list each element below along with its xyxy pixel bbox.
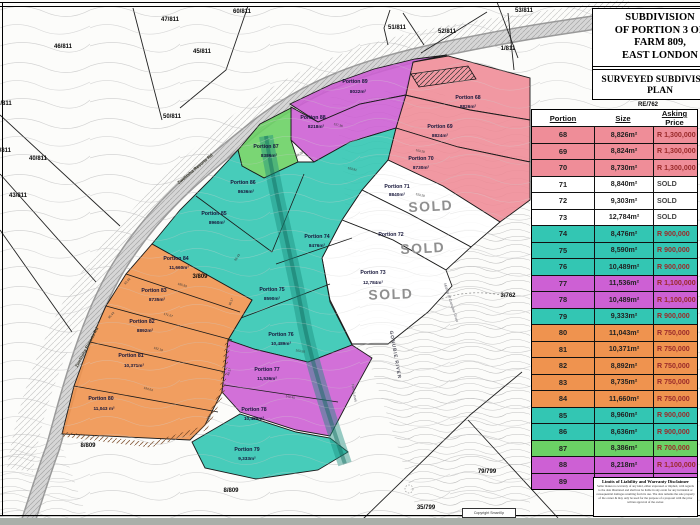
- map-label: Portion 85: [201, 211, 226, 217]
- cell-size: 8,476m²: [595, 226, 654, 242]
- cell-price: R 750,000: [654, 362, 697, 370]
- map-label: Portion 84: [163, 256, 188, 262]
- map-label: Portion 81: [118, 353, 143, 359]
- cell-size: 10,489m²: [595, 259, 654, 275]
- price-table-header: PortionSizeAsking Price: [532, 110, 697, 126]
- table-row[interactable]: 698,824m²R 1,300,000: [532, 143, 697, 160]
- cell-price: R 750,000: [654, 329, 697, 337]
- cadastral-label: 1/811: [501, 46, 516, 52]
- cell-portion: 77: [532, 276, 595, 292]
- map-label: Portion 80: [88, 396, 113, 402]
- map-label: 10,371m²: [124, 363, 145, 368]
- map-label: 12,784m²: [363, 280, 384, 285]
- cell-size: 8,636m²: [595, 424, 654, 440]
- cadastral-label: 51/811: [388, 25, 407, 31]
- table-row[interactable]: 8411,660m²R 750,000: [532, 390, 697, 407]
- table-row[interactable]: 758,590m²R 900,000: [532, 242, 697, 259]
- cell-size: 12,784m²: [595, 210, 654, 226]
- title-lines: SUBDIVISIONOF PORTION 3 OFFARM 809,EAST …: [593, 9, 700, 67]
- cadastral-label: 47/811: [161, 17, 180, 23]
- cell-price: R 900,000: [654, 428, 697, 436]
- cell-size: 8,218m²: [595, 457, 654, 473]
- table-row[interactable]: 729,303m²SOLD: [532, 192, 697, 209]
- cell-price: R 750,000: [654, 395, 697, 403]
- cell-size: 10,371m²: [595, 342, 654, 358]
- cell-size: 11,660m²: [595, 391, 654, 407]
- cadastral-label: 44/811: [0, 148, 12, 154]
- cell-portion: 71: [532, 177, 595, 193]
- map-label: Portion 75: [259, 287, 284, 293]
- cell-price: SOLD: [654, 180, 697, 188]
- table-row[interactable]: 708,730m²R 1,300,000: [532, 159, 697, 176]
- map-label: Portion 76: [268, 332, 293, 338]
- map-label: Portion 87: [253, 144, 278, 150]
- sold-label: SOLD: [408, 197, 454, 215]
- table-row[interactable]: 7312,784m²SOLD: [532, 209, 697, 226]
- price-table: PortionSizeAsking Price 688,826m²R 1,300…: [531, 109, 698, 490]
- table-row[interactable]: 688,826m²R 1,300,000: [532, 126, 697, 143]
- table-row[interactable]: 8110,371m²R 750,000: [532, 341, 697, 358]
- cell-portion: 75: [532, 243, 595, 259]
- title-line: EAST LONDON: [593, 50, 700, 63]
- cadastral-label: 46/811: [54, 44, 73, 50]
- cell-portion: 83: [532, 375, 595, 391]
- map-label: 8590m²: [264, 296, 281, 301]
- cell-portion: 73: [532, 210, 595, 226]
- disclaimer-box: Limits of Liability and Warranty Disclai…: [593, 477, 698, 517]
- sold-label: SOLD: [400, 239, 446, 257]
- cell-portion: 88: [532, 457, 595, 473]
- cell-price: R 900,000: [654, 312, 697, 320]
- cell-size: 11,043m²: [595, 325, 654, 341]
- table-header-cell: Size: [594, 114, 652, 123]
- table-row[interactable]: 858,960m²R 900,000: [532, 407, 697, 424]
- cell-size: 8,824m²: [595, 144, 654, 160]
- cell-size: 9,333m²: [595, 309, 654, 325]
- cell-size: 9,303m²: [595, 193, 654, 209]
- cell-price: R 700,000: [654, 444, 697, 452]
- cell-portion: 86: [532, 424, 595, 440]
- cadastral-label: 45/811: [193, 49, 212, 55]
- map-label: 8476m²: [309, 243, 326, 248]
- cell-price: R 1,100,000: [654, 279, 697, 287]
- cell-price: R 1,300,000: [654, 131, 697, 139]
- title-line: SUBDIVISION: [593, 12, 700, 25]
- cell-portion: 89: [532, 474, 595, 490]
- map-label: Portion 71: [384, 184, 409, 190]
- map-label: 10,489m²: [271, 341, 292, 346]
- title-line: FARM 809,: [593, 37, 700, 50]
- cadastral-label: 3/762: [500, 293, 516, 299]
- cell-portion: 82: [532, 358, 595, 374]
- map-label: 11,660m²: [169, 265, 189, 270]
- map-label: 8960m²: [209, 220, 226, 225]
- map-label: Portion 88: [300, 115, 325, 121]
- subtitle-line: PLAN: [593, 86, 700, 97]
- sold-label: SOLD: [368, 285, 413, 303]
- cell-price: R 1,100,000: [654, 296, 697, 304]
- map-label: 10,489m²: [244, 416, 265, 421]
- cadastral-label: 52/811: [438, 29, 457, 35]
- table-row[interactable]: 838,735m²R 750,000: [532, 374, 697, 391]
- title-block: SUBDIVISIONOF PORTION 3 OFFARM 809,EAST …: [592, 8, 700, 100]
- map-label: 8840m²: [389, 192, 406, 197]
- cadastral-label: RE/762: [638, 102, 659, 108]
- price-table-body: 688,826m²R 1,300,000698,824m²R 1,300,000…: [532, 126, 697, 489]
- cell-size: 8,826m²: [595, 127, 654, 143]
- map-label: Portion 79: [234, 447, 259, 453]
- copyright-stamp: Copyright SmartXp: [462, 508, 516, 518]
- map-label: 9,333m²: [238, 456, 256, 461]
- map-label: 8824m²: [432, 133, 449, 138]
- cell-portion: 70: [532, 160, 595, 176]
- table-row[interactable]: 748,476m²R 900,000: [532, 225, 697, 242]
- cell-portion: 68: [532, 127, 595, 143]
- cell-size: 8,386m²: [595, 441, 654, 457]
- map-label: Portion 86: [230, 180, 255, 186]
- map-label: 8826m²: [460, 104, 477, 109]
- table-row[interactable]: 7610,489m²R 900,000: [532, 258, 697, 275]
- map-label: 8022m²: [350, 89, 367, 94]
- cell-price: R 1,300,000: [654, 147, 697, 155]
- cell-size: 8,960m²: [595, 408, 654, 424]
- cadastral-label: 53/811: [515, 8, 534, 14]
- map-label: Portion 82: [129, 319, 154, 325]
- table-row[interactable]: 799,333m²R 900,000: [532, 308, 697, 325]
- table-header-cell: Portion: [532, 114, 594, 123]
- cell-size: 8,590m²: [595, 243, 654, 259]
- map-label: Portion 69: [427, 124, 452, 130]
- map-label: Portion 74: [304, 234, 329, 240]
- map-label: Portion 78: [241, 407, 266, 413]
- cell-price: R 900,000: [654, 246, 697, 254]
- map-label: Portion 68: [455, 95, 480, 101]
- disclaimer-body: Seller makes no warranty of any kind, ei…: [596, 485, 695, 505]
- cell-price: R 750,000: [654, 378, 697, 386]
- cadastral-label: 3/809: [192, 274, 208, 280]
- map-label: 8730m²: [413, 165, 430, 170]
- table-row[interactable]: 888,218m²R 1,100,000: [532, 456, 697, 473]
- map-label: 8218m²: [308, 124, 325, 129]
- cadastral-label: 60/811: [233, 9, 252, 15]
- cell-price: R 900,000: [654, 230, 697, 238]
- cadastral-label: 8/809: [80, 443, 96, 449]
- cell-size: 10,489m²: [595, 292, 654, 308]
- map-label: 8892m²: [137, 328, 154, 333]
- cell-price: SOLD: [654, 197, 697, 205]
- map-label: Portion 83: [141, 288, 166, 294]
- map-label: 11,043 m²: [93, 406, 115, 411]
- title-line: OF PORTION 3 OF: [593, 25, 700, 38]
- table-row[interactable]: 8011,043m²R 750,000: [532, 324, 697, 341]
- table-header-cell: Asking Price: [652, 109, 697, 127]
- cell-size: 8,840m²: [595, 177, 654, 193]
- map-label: Portion 72: [378, 232, 403, 238]
- map-label: 8636m²: [238, 189, 255, 194]
- cell-portion: 72: [532, 193, 595, 209]
- map-label: 11,536m²: [257, 376, 277, 381]
- cadastral-label: 79/799: [478, 469, 497, 475]
- map-label: Portion 70: [408, 156, 433, 162]
- cell-price: R 900,000: [654, 411, 697, 419]
- cell-price: R 750,000: [654, 345, 697, 353]
- table-row[interactable]: 718,840m²SOLD: [532, 176, 697, 193]
- cadastral-label: 8/809: [223, 488, 239, 494]
- cell-size: 11,536m²: [595, 276, 654, 292]
- map-label: Portion 77: [254, 367, 279, 373]
- cell-price: R 1,100,000: [654, 461, 697, 469]
- subtitle-lines: SURVEYED SUBDIVISIONPLAN: [593, 69, 700, 97]
- map-label: Portion 89: [342, 79, 367, 85]
- cell-portion: 79: [532, 309, 595, 325]
- cell-portion: 85: [532, 408, 595, 424]
- cell-portion: 80: [532, 325, 595, 341]
- subdivision-plan-page: { "colors": { "pink": "#ef8d98", "teal":…: [0, 0, 700, 525]
- cell-portion: 74: [532, 226, 595, 242]
- map-label: 8386m²: [261, 153, 278, 158]
- cell-portion: 84: [532, 391, 595, 407]
- cadastral-label: 50/811: [163, 114, 182, 120]
- cell-portion: 81: [532, 342, 595, 358]
- table-row[interactable]: 868,636m²R 900,000: [532, 423, 697, 440]
- cell-price: R 900,000: [654, 263, 697, 271]
- cell-price: SOLD: [654, 213, 697, 221]
- cell-size: 8,735m²: [595, 375, 654, 391]
- map-label: Portion 73: [360, 270, 385, 276]
- cadastral-label: 35/799: [417, 505, 436, 511]
- cell-portion: 69: [532, 144, 595, 160]
- cell-size: 8,892m²: [595, 358, 654, 374]
- cadastral-label: 43/811: [9, 193, 28, 199]
- cell-portion: 78: [532, 292, 595, 308]
- table-row[interactable]: 828,892m²R 750,000: [532, 357, 697, 374]
- map-label: 8735m²: [149, 297, 166, 302]
- table-row[interactable]: 7711,536m²R 1,100,000: [532, 275, 697, 292]
- cell-portion: 87: [532, 441, 595, 457]
- cell-price: R 1,300,000: [654, 164, 697, 172]
- table-row[interactable]: 878,386m²R 700,000: [532, 440, 697, 457]
- cell-size: 8,730m²: [595, 160, 654, 176]
- table-row[interactable]: 7810,489m²R 1,100,000: [532, 291, 697, 308]
- cadastral-label: 40/811: [29, 156, 48, 162]
- cell-portion: 76: [532, 259, 595, 275]
- subtitle-line: SURVEYED SUBDIVISION: [593, 75, 700, 86]
